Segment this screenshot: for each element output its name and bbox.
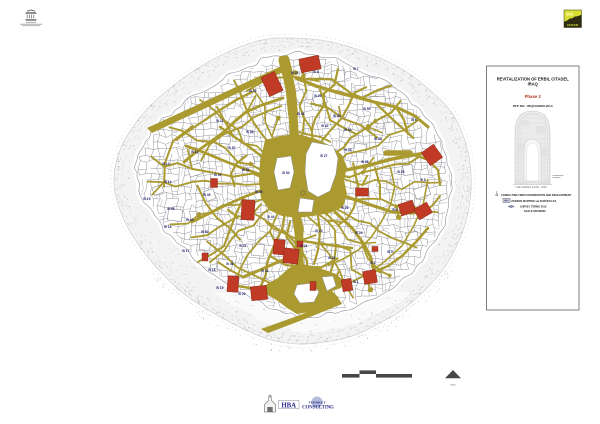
svg-text:HBA: HBA bbox=[281, 402, 296, 409]
svg-text:B 22: B 22 bbox=[328, 256, 335, 260]
svg-text:B 21: B 21 bbox=[300, 244, 307, 248]
svg-text:B 5: B 5 bbox=[420, 178, 425, 182]
svg-text:B 55: B 55 bbox=[363, 107, 370, 111]
svg-text:TURNKEY: TURNKEY bbox=[308, 400, 326, 404]
svg-text:B 23: B 23 bbox=[291, 71, 298, 75]
svg-text:B 1: B 1 bbox=[353, 280, 358, 284]
svg-text:B 48: B 48 bbox=[167, 207, 174, 211]
svg-text:B 34: B 34 bbox=[344, 128, 351, 132]
svg-text:HBA: HBA bbox=[504, 199, 509, 202]
svg-text:B 4: B 4 bbox=[392, 208, 397, 212]
svg-text:B 20: B 20 bbox=[238, 292, 245, 296]
svg-text:B 3: B 3 bbox=[387, 250, 392, 254]
svg-text:B 23: B 23 bbox=[315, 229, 322, 233]
svg-text:RFP NO.: IRQ/HAM/08,2013: RFP NO.: IRQ/HAM/08,2013 bbox=[513, 104, 553, 108]
svg-text:B 18: B 18 bbox=[208, 268, 215, 272]
svg-text:B 54: B 54 bbox=[282, 171, 289, 175]
svg-text:SCALE DRAWING: SCALE DRAWING bbox=[524, 209, 546, 213]
svg-text:CONSULTING FIRM COORDINATION A: CONSULTING FIRM COORDINATION AND DEVELOP… bbox=[501, 193, 572, 197]
svg-text:B 15: B 15 bbox=[143, 197, 150, 201]
svg-text:PERSON MAPPING via SURVEYS DA: PERSON MAPPING via SURVEYS DA bbox=[512, 199, 557, 203]
svg-text:B 13: B 13 bbox=[162, 162, 169, 166]
svg-text:B 19: B 19 bbox=[216, 286, 223, 290]
svg-text:B 45: B 45 bbox=[255, 190, 262, 194]
svg-text:B 2: B 2 bbox=[370, 261, 375, 265]
svg-text:CONSULTING: CONSULTING bbox=[302, 406, 334, 411]
svg-text:B 11: B 11 bbox=[217, 119, 224, 123]
svg-text:B 35: B 35 bbox=[374, 137, 381, 141]
svg-text:B 16: B 16 bbox=[164, 225, 171, 229]
svg-text:B 49: B 49 bbox=[203, 193, 210, 197]
svg-text:B 50: B 50 bbox=[201, 230, 208, 234]
svg-text:B 31: B 31 bbox=[344, 148, 351, 152]
svg-text:B 27: B 27 bbox=[320, 154, 327, 158]
svg-text:B 46: B 46 bbox=[226, 262, 233, 266]
svg-text:B 17: B 17 bbox=[182, 249, 189, 253]
svg-text:B 6: B 6 bbox=[411, 118, 416, 122]
svg-text:B 32: B 32 bbox=[321, 124, 328, 128]
svg-text:B 41: B 41 bbox=[239, 244, 246, 248]
svg-text:B 43: B 43 bbox=[261, 269, 268, 273]
svg-text:B 26: B 26 bbox=[341, 206, 348, 210]
svg-text:B 36: B 36 bbox=[297, 112, 304, 116]
svg-text:THE AHMADI GATE - 1920: THE AHMADI GATE - 1920 bbox=[515, 185, 547, 189]
svg-text:Phase 2: Phase 2 bbox=[525, 94, 542, 99]
svg-text:B 51: B 51 bbox=[214, 173, 221, 177]
svg-text:IRAQ: IRAQ bbox=[528, 82, 539, 87]
svg-text:B 33: B 33 bbox=[333, 114, 340, 118]
svg-text:B 44: B 44 bbox=[267, 215, 274, 219]
svg-text:B 57: B 57 bbox=[228, 146, 235, 150]
svg-text:B 56: B 56 bbox=[246, 130, 253, 134]
svg-text:B 40: B 40 bbox=[186, 218, 193, 222]
svg-text:SURVEY TERMS 2013: SURVEY TERMS 2013 bbox=[520, 204, 547, 208]
svg-text:B 24: B 24 bbox=[355, 231, 362, 235]
svg-text:B 28: B 28 bbox=[361, 160, 368, 164]
svg-text:B 7: B 7 bbox=[353, 67, 358, 71]
svg-text:B 52: B 52 bbox=[242, 168, 249, 172]
svg-text:B 14: B 14 bbox=[164, 180, 171, 184]
svg-text:B 25: B 25 bbox=[314, 94, 321, 98]
svg-text:B 12: B 12 bbox=[191, 150, 198, 154]
svg-text:HCECR: HCECR bbox=[567, 23, 579, 27]
svg-text:B 10: B 10 bbox=[249, 89, 256, 93]
svg-text:B 29: B 29 bbox=[397, 170, 404, 174]
svg-text:B 8: B 8 bbox=[313, 70, 318, 74]
